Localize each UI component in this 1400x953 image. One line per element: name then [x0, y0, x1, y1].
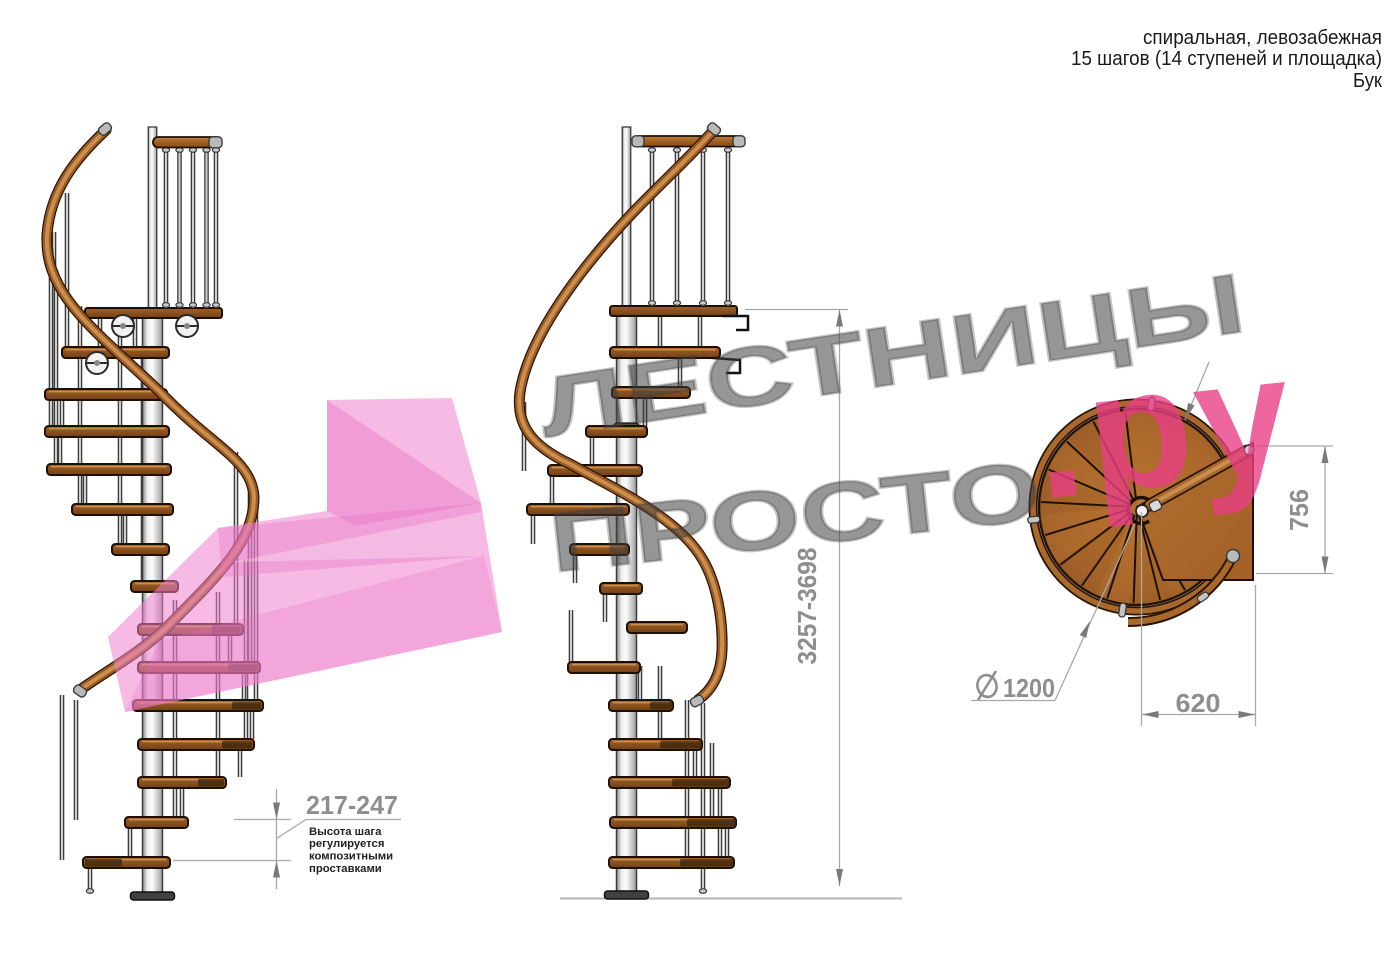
svg-text:15 шагов (14 ступеней и площад: 15 шагов (14 ступеней и площадка): [1071, 47, 1382, 70]
svg-text:спиральная, левозабежная: спиральная, левозабежная: [1143, 26, 1382, 49]
svg-text:Бук: Бук: [1353, 69, 1383, 92]
svg-text:.ру: .ру: [1024, 319, 1299, 536]
svg-text:620: 620: [1176, 688, 1221, 718]
svg-text:Высота шагарегулируетсякомпози: Высота шагарегулируетсякомпозитнымипрост…: [309, 826, 393, 875]
svg-text:3257-3698: 3257-3698: [792, 548, 822, 665]
svg-text:217-247: 217-247: [306, 790, 398, 820]
svg-text:1200: 1200: [1003, 673, 1055, 703]
